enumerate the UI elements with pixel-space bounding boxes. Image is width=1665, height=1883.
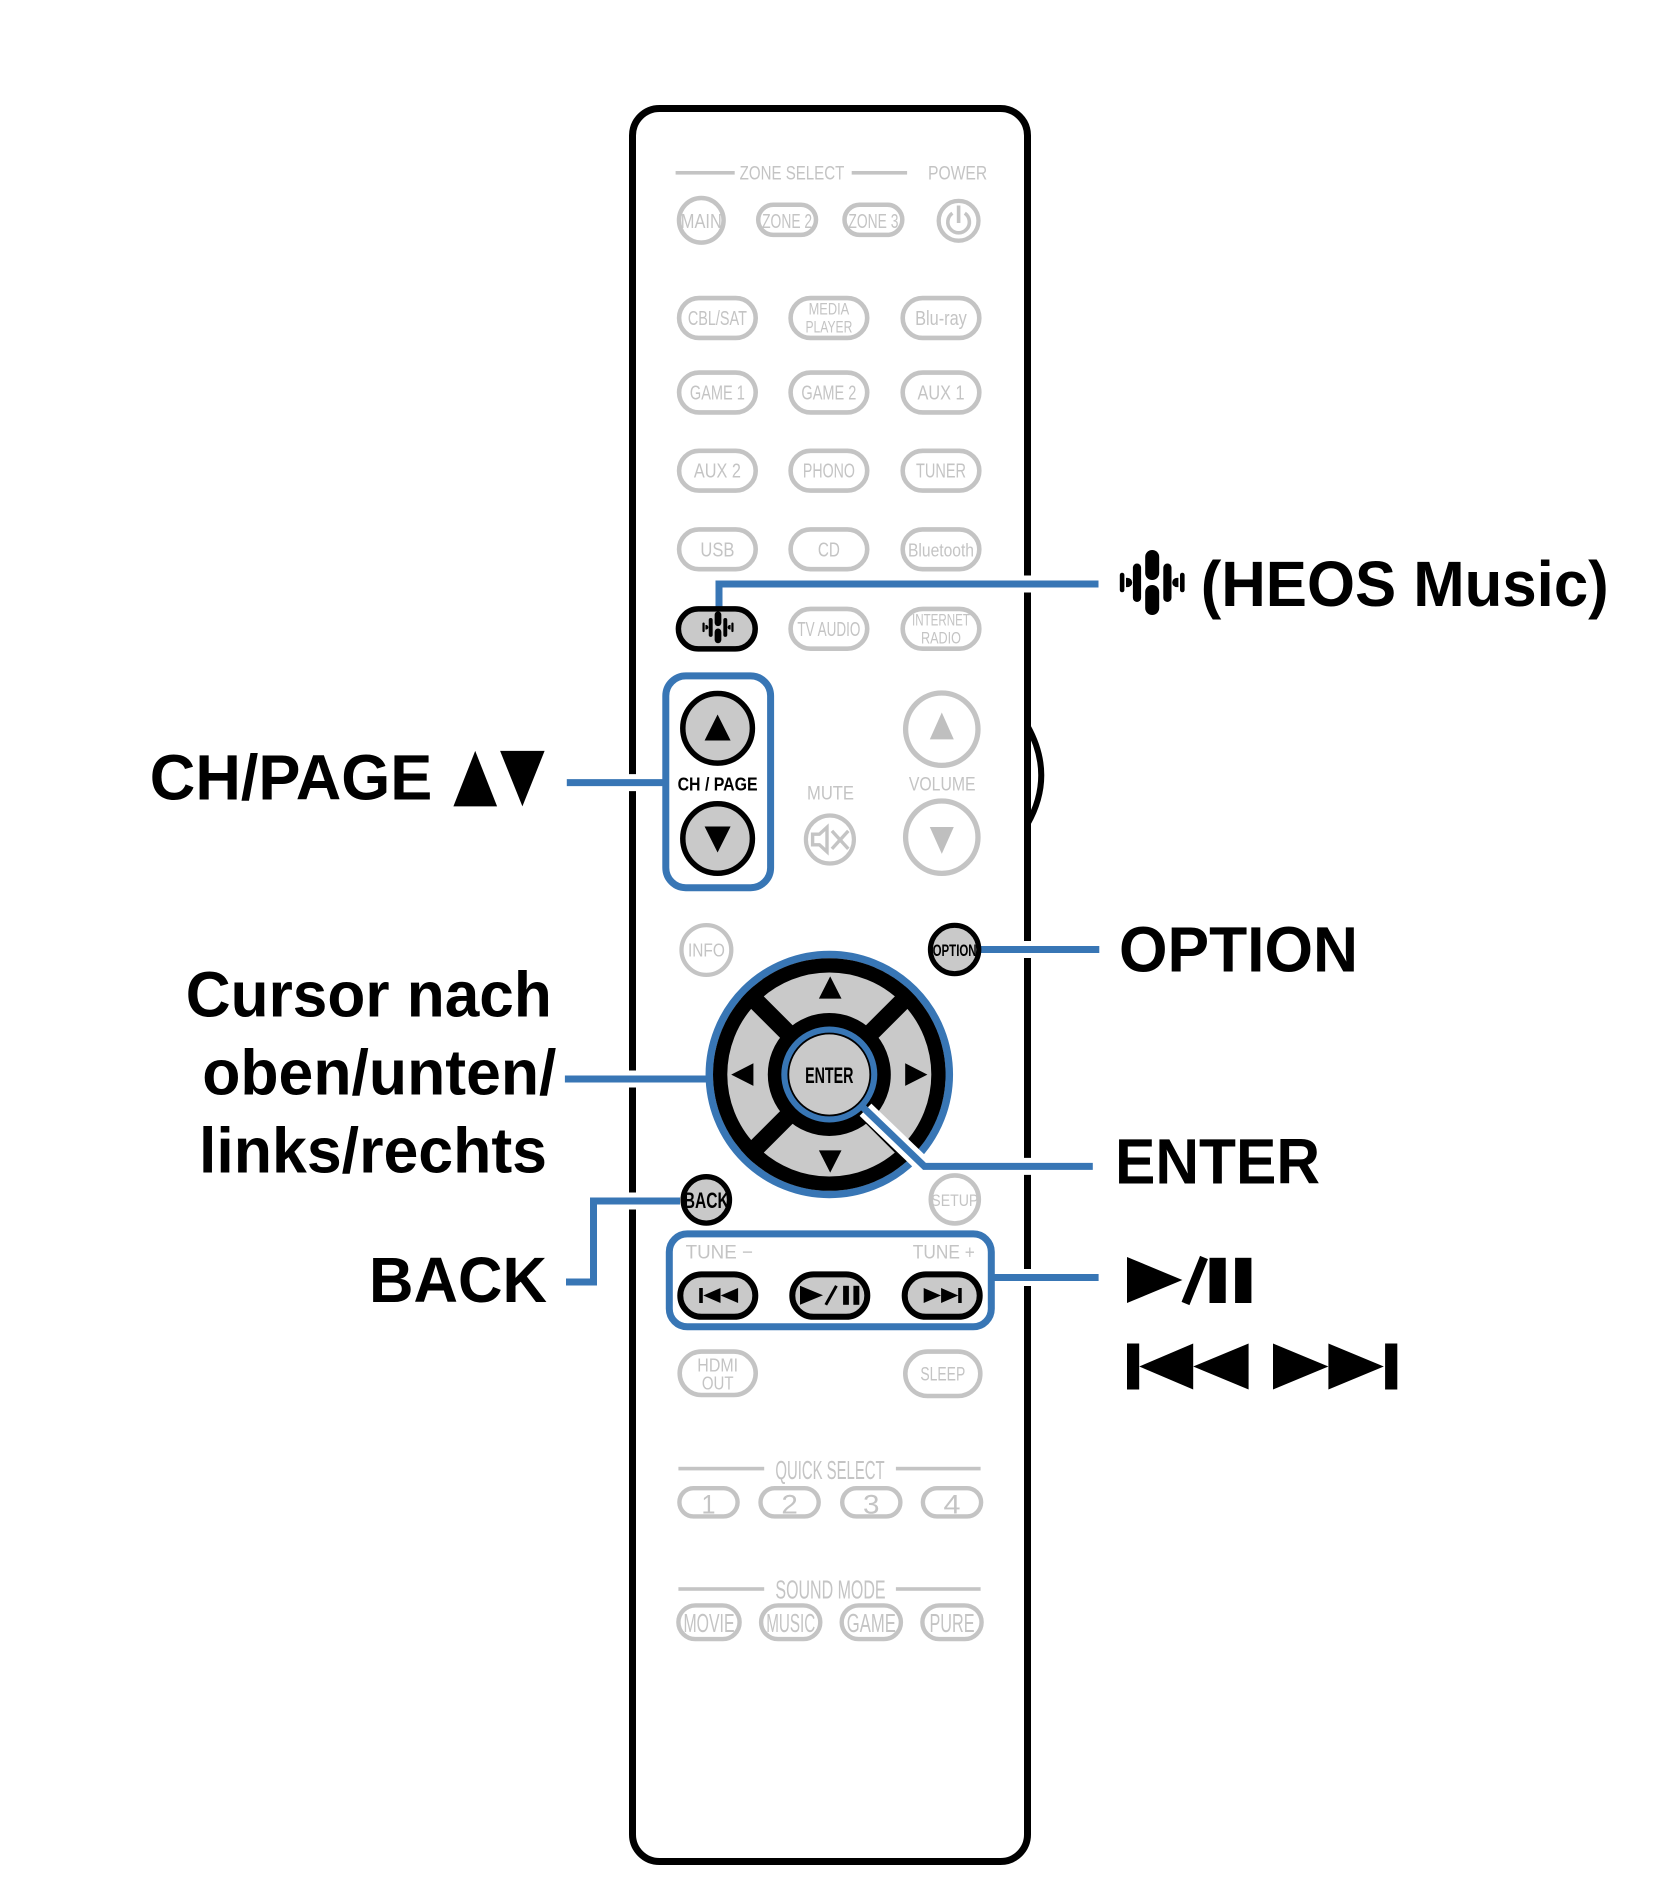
svg-text:MUSIC: MUSIC [766, 1608, 815, 1638]
svg-text:GAME 1: GAME 1 [690, 383, 745, 405]
svg-text:MEDIA: MEDIA [809, 300, 850, 319]
svg-text:HDMI: HDMI [697, 1355, 738, 1375]
svg-text:SETUP: SETUP [931, 1191, 978, 1210]
svg-text:VOLUME: VOLUME [909, 773, 976, 795]
svg-text:links/rechts: links/rechts [199, 1114, 547, 1186]
svg-text:OPTION: OPTION [1119, 914, 1358, 986]
svg-text:POWER: POWER [928, 164, 987, 185]
svg-text:PHONO: PHONO [803, 461, 855, 483]
svg-text:ZONE 3: ZONE 3 [848, 210, 898, 233]
svg-text:BACK: BACK [369, 1244, 547, 1316]
svg-text:TUNER: TUNER [916, 461, 966, 483]
svg-text:PURE: PURE [930, 1608, 975, 1638]
svg-text:BACK: BACK [684, 1188, 729, 1213]
svg-text:3: 3 [863, 1490, 880, 1520]
svg-text:Bluetooth: Bluetooth [908, 539, 974, 560]
svg-text:OPTION: OPTION [933, 941, 977, 960]
svg-text:CBL/SAT: CBL/SAT [688, 308, 747, 330]
svg-text:RADIO: RADIO [921, 628, 961, 647]
svg-text:4: 4 [944, 1490, 961, 1520]
svg-text:MUTE: MUTE [807, 782, 854, 804]
svg-text:ENTER: ENTER [805, 1063, 853, 1088]
svg-text:TV AUDIO: TV AUDIO [797, 619, 860, 641]
svg-text:CD: CD [818, 539, 840, 561]
svg-text:2: 2 [781, 1490, 798, 1520]
svg-text:TUNE −: TUNE − [686, 1242, 753, 1264]
svg-text:GAME: GAME [847, 1608, 896, 1638]
svg-text:OUT: OUT [702, 1374, 734, 1394]
svg-text:ZONE 2: ZONE 2 [762, 210, 812, 233]
svg-text:MOVIE: MOVIE [684, 1608, 735, 1638]
svg-text:GAME 2: GAME 2 [801, 383, 856, 405]
svg-text:AUX 1: AUX 1 [918, 383, 965, 405]
svg-text:AUX 2: AUX 2 [694, 461, 741, 483]
svg-text:QUICK SELECT: QUICK SELECT [775, 1455, 884, 1485]
svg-text:TUNE +: TUNE + [913, 1242, 975, 1264]
svg-text:ZONE SELECT: ZONE SELECT [740, 164, 845, 185]
svg-text:CH / PAGE: CH / PAGE [678, 775, 758, 795]
svg-text:CH/PAGE: CH/PAGE [150, 741, 433, 813]
svg-text:(HEOS Music): (HEOS Music) [1201, 548, 1609, 620]
svg-text:Blu-ray: Blu-ray [915, 308, 967, 330]
svg-text:USB: USB [700, 539, 734, 561]
svg-text:ENTER: ENTER [1115, 1126, 1320, 1198]
svg-text:SLEEP: SLEEP [920, 1365, 965, 1386]
svg-text:oben/unten/: oben/unten/ [202, 1036, 556, 1108]
svg-text:MAIN: MAIN [681, 210, 722, 233]
svg-text:INTERNET: INTERNET [912, 610, 970, 629]
svg-text:SOUND MODE: SOUND MODE [775, 1574, 885, 1604]
svg-text:INFO: INFO [688, 941, 725, 961]
svg-text:PLAYER: PLAYER [806, 318, 853, 337]
svg-text:Cursor nach: Cursor nach [186, 958, 552, 1030]
svg-text:1: 1 [702, 1490, 716, 1520]
